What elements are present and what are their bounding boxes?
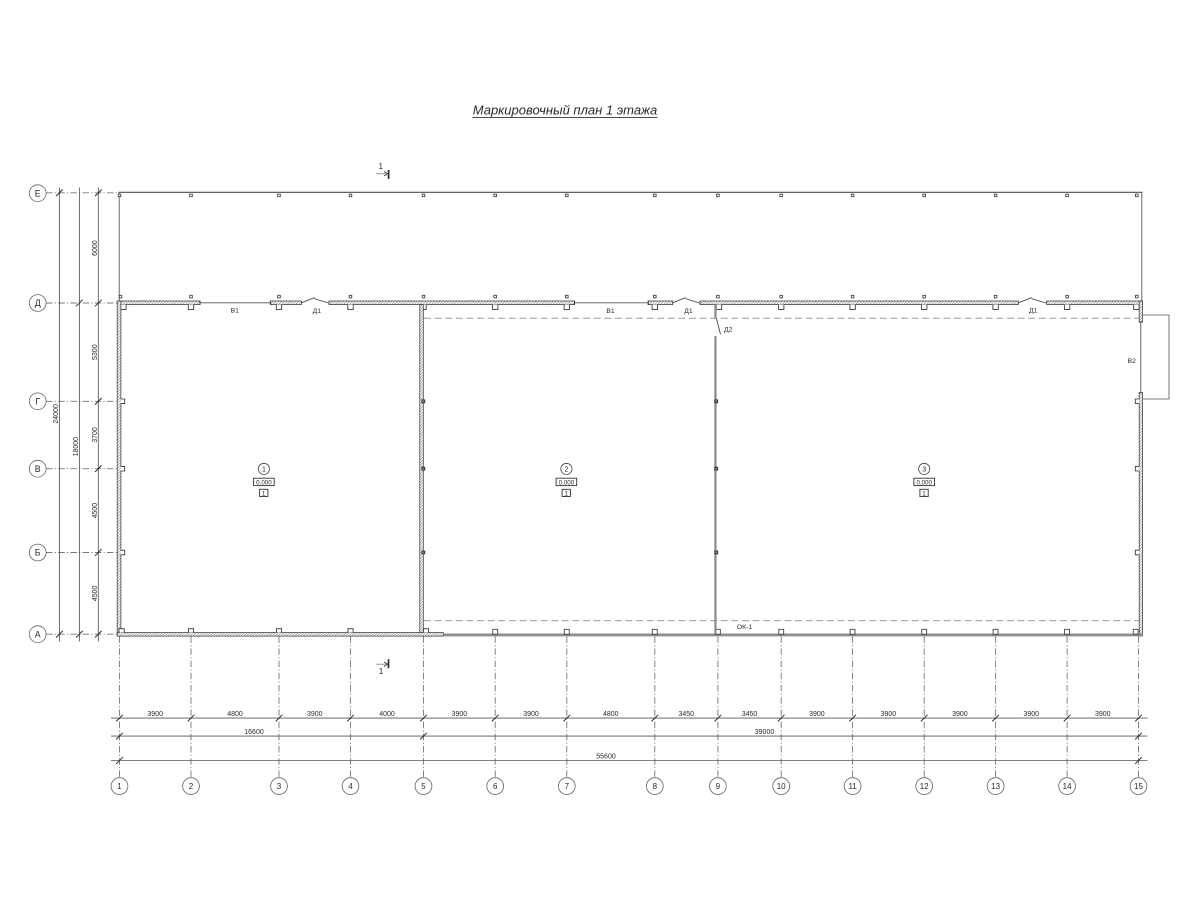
svg-text:В2: В2 (1128, 358, 1137, 365)
svg-text:18000: 18000 (73, 437, 80, 457)
svg-text:1: 1 (262, 490, 266, 497)
svg-text:3: 3 (922, 467, 926, 474)
svg-text:В1: В1 (231, 308, 240, 315)
svg-text:Д: Д (35, 298, 41, 308)
svg-text:4500: 4500 (92, 586, 99, 602)
svg-text:6: 6 (493, 782, 498, 791)
svg-text:В1: В1 (606, 308, 615, 315)
svg-text:39000: 39000 (755, 729, 775, 736)
svg-text:ОК-1: ОК-1 (737, 624, 753, 631)
svg-text:3700: 3700 (92, 427, 99, 443)
svg-text:3900: 3900 (881, 711, 897, 718)
svg-text:3900: 3900 (952, 711, 968, 718)
svg-text:1: 1 (379, 162, 384, 171)
svg-text:Д1: Д1 (1029, 307, 1038, 314)
svg-text:5: 5 (421, 782, 426, 791)
svg-text:3450: 3450 (742, 711, 758, 718)
svg-text:1: 1 (564, 490, 568, 497)
svg-text:14: 14 (1063, 782, 1072, 791)
svg-text:3450: 3450 (679, 711, 695, 718)
svg-text:3900: 3900 (147, 711, 163, 718)
svg-text:1: 1 (117, 782, 122, 791)
svg-text:1: 1 (262, 467, 266, 474)
svg-text:4500: 4500 (92, 503, 99, 519)
svg-text:4000: 4000 (379, 711, 395, 718)
svg-text:4800: 4800 (603, 711, 619, 718)
svg-text:8: 8 (653, 782, 658, 791)
svg-text:0.000: 0.000 (256, 479, 272, 486)
svg-text:3: 3 (277, 782, 282, 791)
svg-text:16600: 16600 (244, 729, 264, 736)
svg-text:Д1: Д1 (313, 308, 322, 315)
svg-text:5300: 5300 (92, 344, 99, 360)
svg-text:А: А (35, 629, 41, 639)
svg-text:1: 1 (379, 667, 384, 676)
svg-text:3900: 3900 (1095, 711, 1111, 718)
svg-text:3900: 3900 (1024, 711, 1040, 718)
svg-text:3900: 3900 (452, 711, 468, 718)
svg-text:4800: 4800 (227, 711, 243, 718)
svg-text:4: 4 (348, 782, 353, 791)
svg-text:Е: Е (35, 188, 41, 198)
svg-text:6000: 6000 (92, 240, 99, 256)
svg-text:9: 9 (716, 782, 721, 791)
svg-text:11: 11 (848, 782, 857, 791)
svg-text:0.000: 0.000 (916, 479, 932, 486)
svg-text:3900: 3900 (809, 711, 825, 718)
svg-text:1: 1 (922, 490, 926, 497)
svg-text:7: 7 (565, 782, 570, 791)
svg-text:Д1: Д1 (684, 308, 693, 315)
svg-text:2: 2 (564, 467, 568, 474)
svg-text:В: В (35, 464, 41, 474)
svg-text:3900: 3900 (307, 711, 323, 718)
svg-text:Б: Б (35, 548, 41, 558)
svg-text:3900: 3900 (523, 711, 539, 718)
svg-text:13: 13 (991, 782, 1000, 791)
svg-text:Д2: Д2 (724, 326, 733, 333)
svg-text:Маркировочный план 1 этажа: Маркировочный план 1 этажа (473, 103, 658, 118)
svg-text:Г: Г (35, 397, 40, 407)
svg-text:0.000: 0.000 (559, 479, 575, 486)
svg-text:15: 15 (1134, 782, 1143, 791)
svg-text:2: 2 (189, 782, 194, 791)
svg-text:10: 10 (777, 782, 786, 791)
svg-text:12: 12 (920, 782, 929, 791)
svg-text:24000: 24000 (53, 404, 60, 424)
svg-text:55600: 55600 (596, 754, 616, 761)
